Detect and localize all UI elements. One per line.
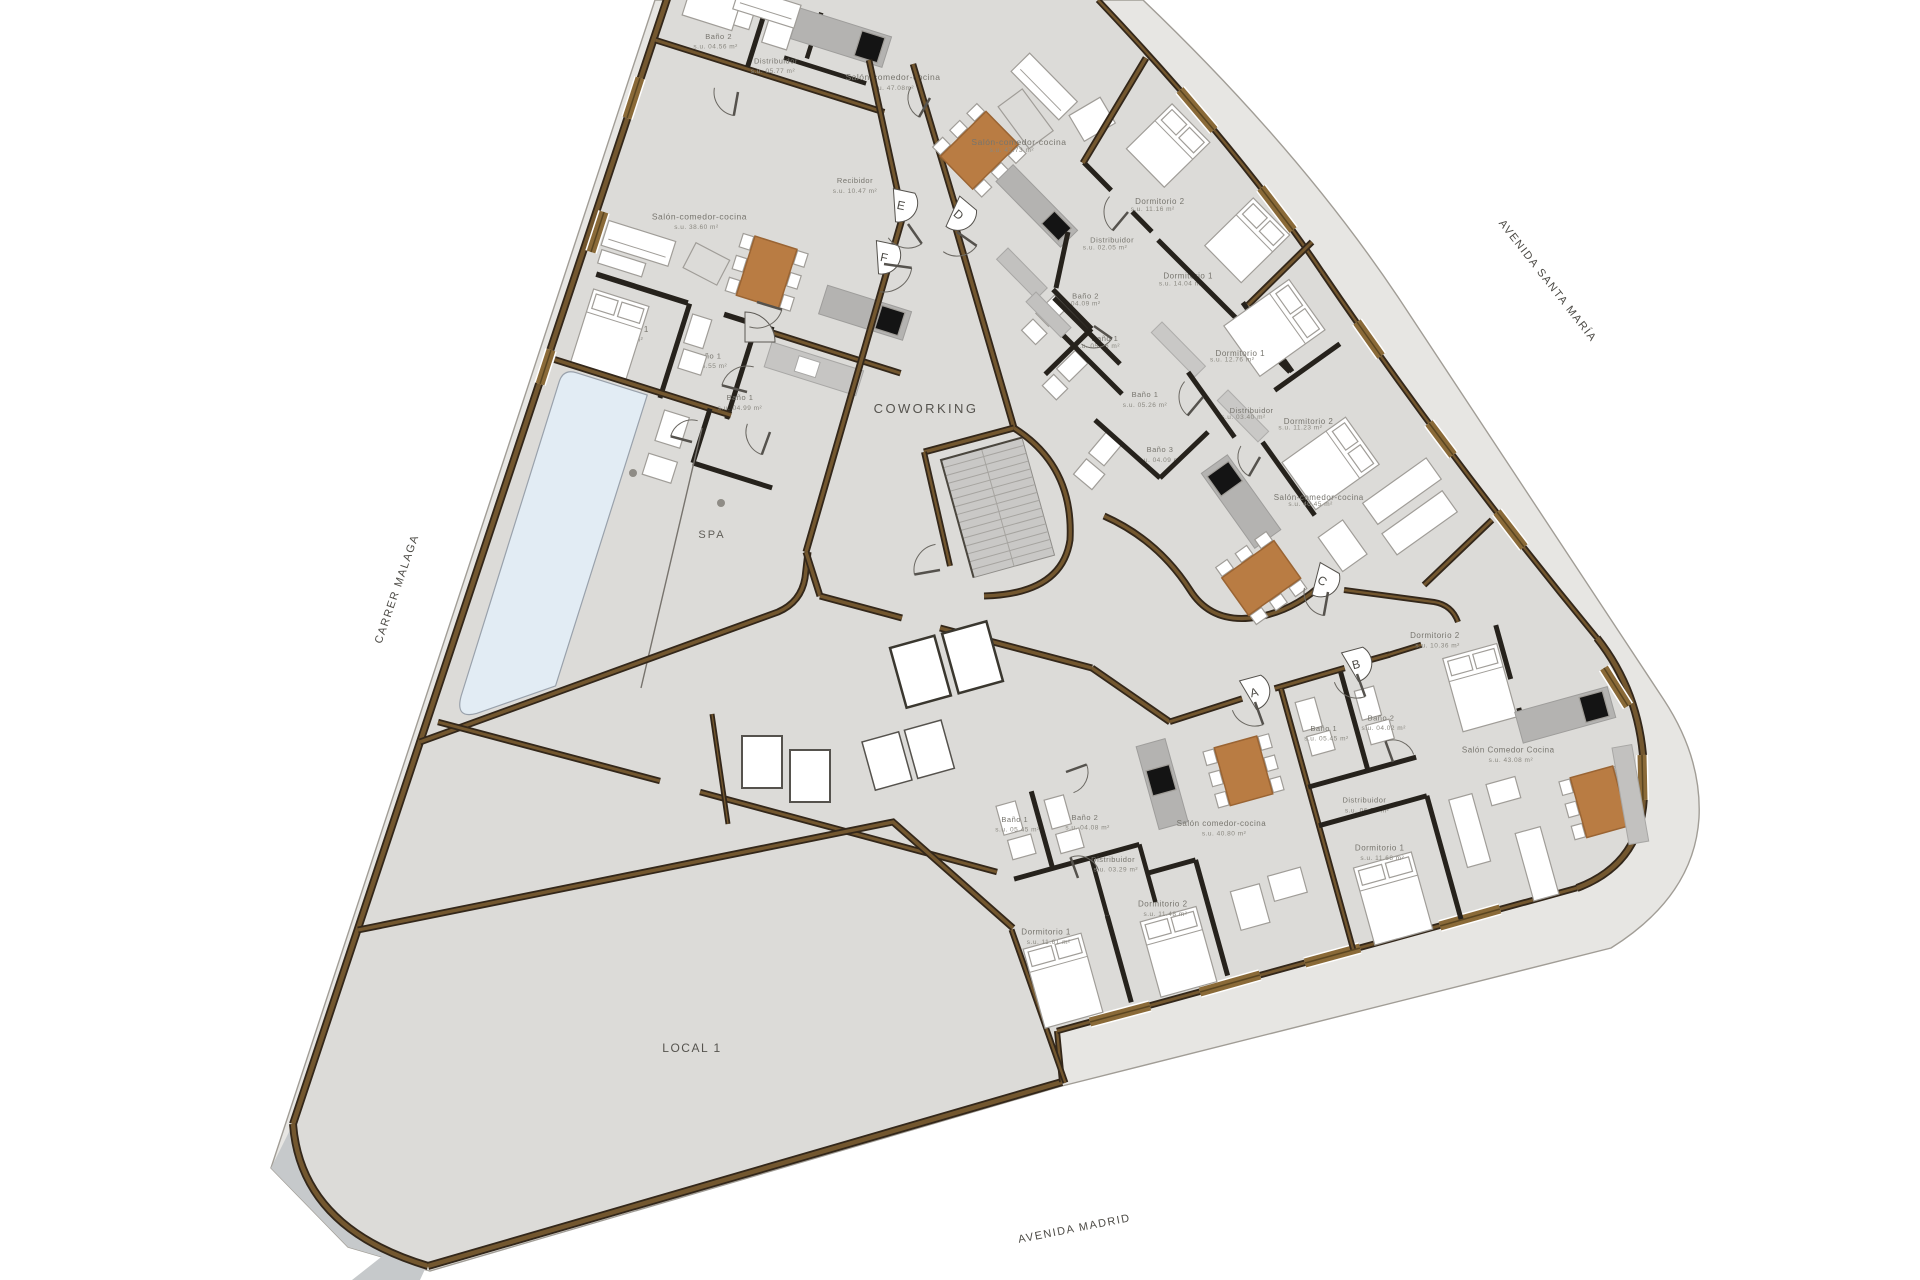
svg-text:COWORKING: COWORKING: [874, 401, 979, 416]
svg-text:Dormitorio 2: Dormitorio 2: [1138, 899, 1188, 908]
svg-text:Distribuidor: Distribuidor: [754, 56, 798, 65]
svg-text:s.u. 05.45 m²: s.u. 05.45 m²: [995, 826, 1040, 833]
svg-text:LOCAL 1: LOCAL 1: [662, 1041, 721, 1055]
svg-text:s.u. 04.02 m²: s.u. 04.02 m²: [1361, 725, 1406, 732]
svg-text:s.u. 04.08 m²: s.u. 04.08 m²: [1065, 825, 1110, 832]
svg-text:Distribuidor: Distribuidor: [1090, 236, 1134, 245]
svg-text:Baño 3: Baño 3: [1147, 445, 1174, 454]
svg-text:Recibidor: Recibidor: [837, 176, 873, 185]
svg-text:s.u. 47.73 m²: s.u. 47.73 m²: [990, 147, 1035, 154]
svg-text:Dormitorio 2: Dormitorio 2: [1135, 197, 1185, 206]
svg-text:Salón-comedor-cocina: Salón-comedor-cocina: [845, 72, 940, 82]
svg-text:s.u. 43.08 m²: s.u. 43.08 m²: [1489, 757, 1534, 764]
svg-text:s.u. 40.45 m²: s.u. 40.45 m²: [1288, 501, 1333, 508]
svg-text:s.u. 04.56 m²: s.u. 04.56 m²: [693, 44, 738, 51]
svg-text:CARRER MALAGA: CARRER MALAGA: [373, 533, 422, 646]
svg-text:s.u. 11.16 m²: s.u. 11.16 m²: [1131, 206, 1175, 213]
svg-text:Distribuidor: Distribuidor: [1091, 855, 1135, 864]
svg-text:Baño 2: Baño 2: [1071, 813, 1098, 822]
svg-text:Salón Comedor Cocina: Salón Comedor Cocina: [1462, 745, 1555, 754]
svg-text:Salón-comedor-cocina: Salón-comedor-cocina: [652, 212, 747, 222]
svg-text:Dormitorio 1: Dormitorio 1: [1021, 928, 1071, 937]
svg-text:s.u. 05.45 m²: s.u. 05.45 m²: [1304, 736, 1349, 743]
svg-text:Baño 1: Baño 1: [1001, 815, 1028, 824]
svg-text:s.u. 11.48 m²: s.u. 11.48 m²: [1143, 911, 1187, 918]
svg-text:s.u. 03.29 m²: s.u. 03.29 m²: [1094, 867, 1139, 874]
svg-text:Distribuidor: Distribuidor: [1342, 796, 1386, 805]
svg-text:Baño 2: Baño 2: [1368, 713, 1395, 722]
svg-text:s.u. 04.99 m²: s.u. 04.99 m²: [718, 405, 763, 412]
svg-text:s.u. 12.76 m²: s.u. 12.76 m²: [1210, 357, 1255, 364]
svg-text:Baño 2: Baño 2: [705, 32, 732, 41]
svg-text:Dormitorio 2: Dormitorio 2: [1410, 631, 1460, 640]
svg-text:s.u. 10.36 m²: s.u. 10.36 m²: [1415, 642, 1460, 649]
svg-text:SPA: SPA: [698, 529, 725, 541]
svg-text:AVENIDA SANTA MARÍA: AVENIDA SANTA MARÍA: [1496, 217, 1600, 344]
svg-text:Salón comedor-cocina: Salón comedor-cocina: [1177, 819, 1267, 828]
svg-text:s.u. 05.26 m²: s.u. 05.26 m²: [1123, 402, 1168, 409]
svg-text:Dormitorio 1: Dormitorio 1: [1355, 843, 1405, 852]
svg-text:Baño 2: Baño 2: [1072, 291, 1099, 300]
svg-text:s.u. 05.77 m²: s.u. 05.77 m²: [751, 68, 796, 75]
svg-text:s.u. 03.40 m²: s.u. 03.40 m²: [1221, 414, 1266, 421]
svg-text:s.u. 10.47 m²: s.u. 10.47 m²: [833, 188, 878, 195]
svg-text:AVENIDA MADRID: AVENIDA MADRID: [1017, 1212, 1132, 1246]
svg-text:Salón-comedor-cocina: Salón-comedor-cocina: [971, 137, 1066, 147]
svg-text:s.u. 38.60 m²: s.u. 38.60 m²: [674, 224, 719, 231]
svg-text:Baño 1: Baño 1: [1132, 390, 1159, 399]
svg-text:s.u. 40.80 m²: s.u. 40.80 m²: [1202, 830, 1247, 837]
svg-text:s.u. 11.61 m²: s.u. 11.61 m²: [1027, 939, 1071, 946]
svg-text:Baño 1: Baño 1: [727, 393, 754, 402]
svg-text:Baño 1: Baño 1: [1310, 724, 1337, 733]
svg-text:s.u. 11.68 m²: s.u. 11.68 m²: [1360, 855, 1404, 862]
svg-text:s.u. 11.23 m²: s.u. 11.23 m²: [1278, 425, 1322, 432]
svg-text:s.u. 02.05 m²: s.u. 02.05 m²: [1083, 245, 1128, 252]
